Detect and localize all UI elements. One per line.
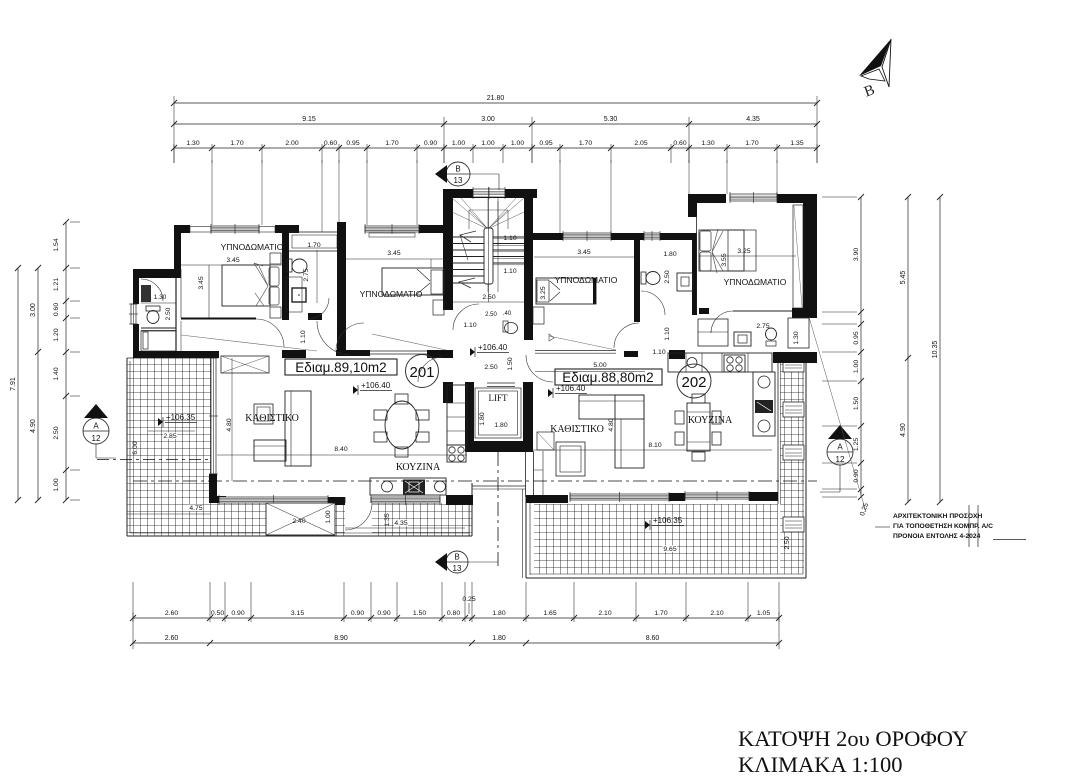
svg-text:1.10: 1.10 bbox=[503, 268, 516, 275]
svg-text:0.60: 0.60 bbox=[53, 303, 60, 316]
svg-text:4.75: 4.75 bbox=[189, 505, 202, 512]
svg-text:9.65: 9.65 bbox=[663, 546, 676, 553]
svg-text:1.00: 1.00 bbox=[452, 140, 465, 147]
svg-text:3.90: 3.90 bbox=[853, 248, 860, 261]
svg-text:Εδιαμ.88,80m2: Εδιαμ.88,80m2 bbox=[562, 370, 653, 385]
svg-text:1.30: 1.30 bbox=[793, 331, 800, 344]
svg-text:1.80: 1.80 bbox=[663, 251, 676, 258]
svg-text:0.25: 0.25 bbox=[462, 596, 475, 603]
svg-text:1.80: 1.80 bbox=[479, 412, 486, 425]
svg-text:ΚΟΥΖΙΝΑ: ΚΟΥΖΙΝΑ bbox=[688, 415, 733, 426]
svg-text:2.50: 2.50 bbox=[482, 294, 495, 301]
svg-text:13: 13 bbox=[453, 564, 462, 573]
svg-text:1.70: 1.70 bbox=[654, 610, 667, 617]
svg-text:1.10: 1.10 bbox=[463, 322, 476, 329]
svg-text:0.60: 0.60 bbox=[324, 140, 337, 147]
svg-text:4.80: 4.80 bbox=[608, 418, 615, 431]
svg-text:12: 12 bbox=[92, 434, 101, 443]
svg-text:1.35: 1.35 bbox=[384, 513, 391, 526]
svg-text:ΥΠΝΟΔΩΜΑΤΙΟ: ΥΠΝΟΔΩΜΑΤΙΟ bbox=[221, 242, 284, 252]
svg-text:1.80: 1.80 bbox=[492, 635, 506, 642]
svg-text:0.90: 0.90 bbox=[351, 610, 364, 617]
svg-text:ΥΠΝΟΔΩΜΑΤΙΟ: ΥΠΝΟΔΩΜΑΤΙΟ bbox=[724, 277, 787, 287]
svg-text:0.60: 0.60 bbox=[673, 140, 686, 147]
svg-text:1.00: 1.00 bbox=[511, 140, 524, 147]
svg-text:ΚΑΘΙΣΤΙΚΟ: ΚΑΘΙΣΤΙΚΟ bbox=[550, 424, 604, 435]
svg-text:1.50: 1.50 bbox=[853, 397, 860, 410]
svg-text:+106.35: +106.35 bbox=[653, 516, 683, 525]
svg-text:21.80: 21.80 bbox=[487, 95, 505, 102]
svg-text:2.50: 2.50 bbox=[664, 270, 671, 283]
svg-text:1.40: 1.40 bbox=[53, 367, 60, 380]
svg-text:1.00: 1.00 bbox=[481, 140, 494, 147]
svg-text:1.00: 1.00 bbox=[853, 360, 860, 373]
svg-text:1.20: 1.20 bbox=[53, 328, 60, 341]
svg-text:1.00: 1.00 bbox=[325, 510, 332, 523]
svg-text:201: 201 bbox=[409, 364, 434, 381]
svg-text:10.35: 10.35 bbox=[932, 341, 939, 359]
svg-text:+106.35: +106.35 bbox=[166, 413, 196, 422]
svg-text:1.30: 1.30 bbox=[154, 294, 167, 301]
svg-text:ΥΠΝΟΔΩΜΑΤΙΟ: ΥΠΝΟΔΩΜΑΤΙΟ bbox=[360, 289, 423, 299]
svg-text:8.90: 8.90 bbox=[334, 635, 348, 642]
svg-text:0.95: 0.95 bbox=[853, 331, 860, 344]
svg-text:8.60: 8.60 bbox=[646, 635, 660, 642]
svg-text:1.10: 1.10 bbox=[503, 235, 516, 242]
svg-text:B: B bbox=[454, 553, 459, 562]
svg-text:1.35: 1.35 bbox=[790, 140, 803, 147]
svg-text:5.45: 5.45 bbox=[900, 271, 907, 285]
svg-text:6.00: 6.00 bbox=[132, 441, 139, 454]
svg-text:2.60: 2.60 bbox=[165, 635, 179, 642]
svg-text:2.10: 2.10 bbox=[710, 610, 723, 617]
svg-text:202: 202 bbox=[681, 374, 706, 391]
svg-text:5.30: 5.30 bbox=[604, 116, 618, 123]
svg-text:5.00: 5.00 bbox=[593, 362, 606, 369]
svg-text:1.21: 1.21 bbox=[53, 278, 60, 291]
svg-text:2.60: 2.60 bbox=[165, 610, 178, 617]
svg-text:4.90: 4.90 bbox=[900, 423, 907, 437]
svg-text:0.90: 0.90 bbox=[231, 610, 244, 617]
svg-text:0.90: 0.90 bbox=[377, 610, 390, 617]
svg-text:1.80: 1.80 bbox=[494, 422, 507, 429]
svg-text:1.50: 1.50 bbox=[413, 610, 426, 617]
svg-text:1.25: 1.25 bbox=[853, 438, 860, 451]
svg-text:1.54: 1.54 bbox=[53, 238, 60, 251]
svg-text:2.50: 2.50 bbox=[53, 426, 60, 439]
svg-text:A: A bbox=[837, 443, 843, 452]
svg-text:2.40: 2.40 bbox=[292, 518, 305, 525]
svg-text:3.55: 3.55 bbox=[721, 253, 728, 266]
svg-text:2.00: 2.00 bbox=[285, 140, 298, 147]
svg-text:B: B bbox=[455, 165, 460, 174]
svg-text:1.05: 1.05 bbox=[757, 610, 770, 617]
svg-text:3.45: 3.45 bbox=[387, 250, 400, 257]
svg-text:+106.40: +106.40 bbox=[556, 384, 586, 393]
svg-text:1.80: 1.80 bbox=[492, 610, 505, 617]
svg-text:1.50: 1.50 bbox=[507, 357, 514, 370]
svg-text:9.15: 9.15 bbox=[302, 116, 316, 123]
svg-text:3.45: 3.45 bbox=[577, 249, 590, 256]
svg-text:2.85: 2.85 bbox=[163, 433, 176, 440]
svg-text:0.90: 0.90 bbox=[424, 140, 437, 147]
svg-text:Εδιαμ.89,10m2: Εδιαμ.89,10m2 bbox=[295, 360, 386, 375]
svg-text:1.65: 1.65 bbox=[543, 610, 556, 617]
svg-text:ΚΛΙΜΑΚΑ 1:100: ΚΛΙΜΑΚΑ 1:100 bbox=[738, 752, 902, 777]
svg-text:1.70: 1.70 bbox=[579, 140, 592, 147]
svg-text:4.90: 4.90 bbox=[30, 419, 37, 433]
svg-text:2.50: 2.50 bbox=[484, 364, 497, 371]
svg-text:0.95: 0.95 bbox=[539, 140, 552, 147]
svg-text:1.70: 1.70 bbox=[230, 140, 243, 147]
svg-text:1.10: 1.10 bbox=[300, 330, 307, 343]
svg-text:LIFT: LIFT bbox=[489, 393, 509, 403]
svg-text:.40: .40 bbox=[503, 311, 512, 317]
svg-text:A: A bbox=[93, 422, 99, 431]
svg-text:+106.40: +106.40 bbox=[478, 343, 508, 352]
svg-text:0.95: 0.95 bbox=[346, 140, 359, 147]
svg-text:8.10: 8.10 bbox=[648, 442, 661, 449]
svg-text:3.45: 3.45 bbox=[226, 257, 239, 264]
svg-text:1.00: 1.00 bbox=[53, 478, 60, 491]
svg-text:1.70: 1.70 bbox=[385, 140, 398, 147]
svg-text:1.70: 1.70 bbox=[745, 140, 758, 147]
svg-text:1.30: 1.30 bbox=[186, 140, 199, 147]
svg-text:ΠΡΟΝΟΙΑ ΕΝΤΟΛΗΣ 4-2024: ΠΡΟΝΟΙΑ ΕΝΤΟΛΗΣ 4-2024 bbox=[893, 533, 981, 540]
svg-text:ΥΠΝΟΔΩΜΑΤΙΟ: ΥΠΝΟΔΩΜΑΤΙΟ bbox=[555, 275, 618, 285]
svg-text:ΚΑΘΙΣΤΙΚΟ: ΚΑΘΙΣΤΙΚΟ bbox=[245, 413, 299, 424]
svg-text:2.10: 2.10 bbox=[598, 610, 611, 617]
svg-text:ΚΑΤΟΨΗ 2ου ΟΡΟΦΟΥ: ΚΑΤΟΨΗ 2ου ΟΡΟΦΟΥ bbox=[738, 726, 968, 751]
svg-text:3.00: 3.00 bbox=[481, 116, 495, 123]
svg-text:0.50: 0.50 bbox=[211, 610, 224, 617]
svg-text:1.70: 1.70 bbox=[307, 242, 320, 249]
svg-text:4.35: 4.35 bbox=[394, 520, 407, 527]
svg-text:3.00: 3.00 bbox=[30, 303, 37, 317]
svg-text:13: 13 bbox=[454, 176, 463, 185]
svg-text:3.15: 3.15 bbox=[291, 610, 304, 617]
svg-text:+106.40: +106.40 bbox=[361, 381, 391, 390]
svg-text:3.25: 3.25 bbox=[737, 248, 750, 255]
svg-text:3.25: 3.25 bbox=[540, 286, 547, 299]
svg-text:ΚΟΥΖΙΝΑ: ΚΟΥΖΙΝΑ bbox=[396, 462, 441, 473]
svg-text:2.05: 2.05 bbox=[634, 140, 647, 147]
svg-text:2.75: 2.75 bbox=[303, 268, 310, 281]
svg-text:8.40: 8.40 bbox=[334, 446, 347, 453]
svg-text:2.50: 2.50 bbox=[485, 312, 497, 318]
svg-text:1.30: 1.30 bbox=[701, 140, 714, 147]
svg-text:0.80: 0.80 bbox=[447, 610, 460, 617]
svg-text:1.10: 1.10 bbox=[652, 349, 665, 356]
svg-text:2.50: 2.50 bbox=[784, 536, 791, 549]
svg-text:7.91: 7.91 bbox=[10, 377, 17, 391]
svg-text:12: 12 bbox=[836, 455, 845, 464]
svg-text:1.10: 1.10 bbox=[664, 327, 671, 340]
svg-text:3.45: 3.45 bbox=[198, 276, 205, 289]
svg-text:2.50: 2.50 bbox=[165, 307, 172, 320]
svg-text:4.35: 4.35 bbox=[746, 116, 760, 123]
